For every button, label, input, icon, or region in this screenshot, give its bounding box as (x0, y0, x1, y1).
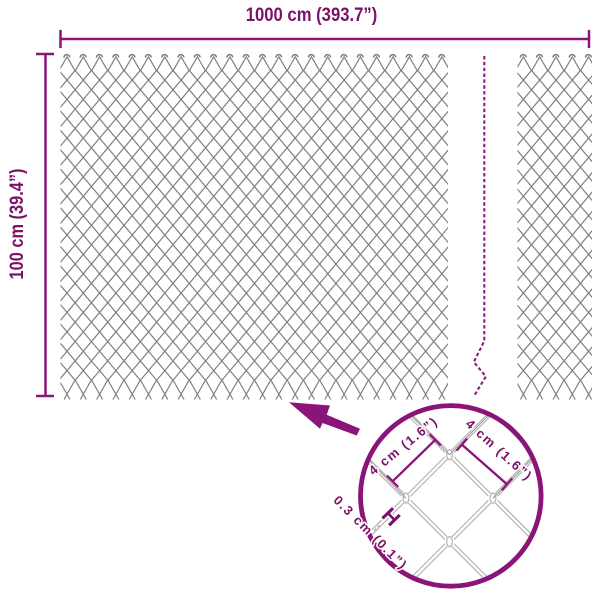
svg-text:100 cm (39.4”): 100 cm (39.4”) (6, 169, 28, 280)
svg-text:1000 cm (393.7”): 1000 cm (393.7”) (246, 4, 378, 26)
